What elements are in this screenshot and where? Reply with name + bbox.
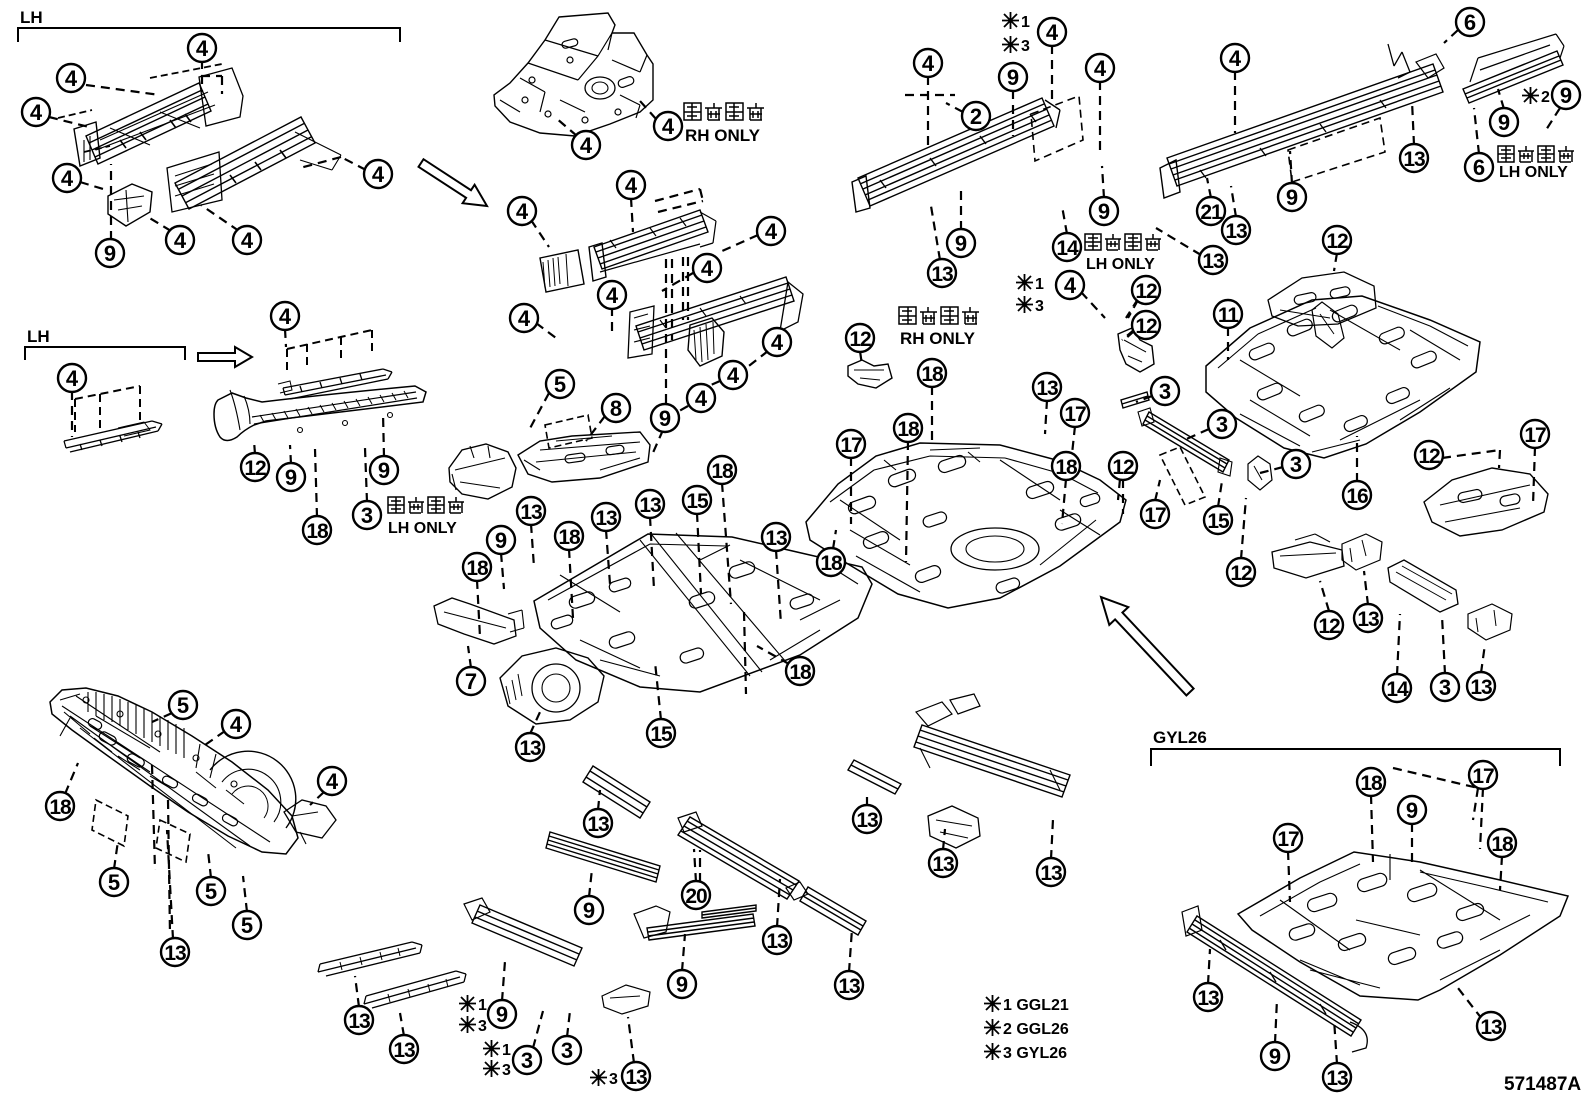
svg-text:20: 20	[685, 885, 707, 908]
svg-text:5: 5	[241, 913, 253, 938]
svg-text:16: 16	[1346, 485, 1368, 508]
svg-text:3: 3	[361, 503, 373, 528]
svg-text:13: 13	[164, 942, 186, 965]
svg-text:9: 9	[1498, 110, 1510, 135]
svg-text:4: 4	[516, 199, 529, 224]
svg-text:13: 13	[348, 1010, 370, 1033]
svg-text:1: 1	[478, 997, 487, 1014]
svg-text:9: 9	[285, 465, 297, 490]
svg-text:4: 4	[65, 66, 78, 91]
svg-text:12: 12	[244, 457, 266, 480]
svg-text:9: 9	[495, 528, 507, 553]
svg-text:5: 5	[177, 693, 189, 718]
svg-text:4: 4	[606, 283, 619, 308]
svg-text:14: 14	[1056, 237, 1079, 260]
svg-text:13: 13	[519, 737, 541, 760]
svg-text:9: 9	[1286, 185, 1298, 210]
svg-text:13: 13	[1197, 987, 1219, 1010]
svg-text:4: 4	[518, 306, 531, 331]
svg-text:18: 18	[466, 557, 489, 580]
svg-text:13: 13	[766, 930, 788, 953]
svg-text:4: 4	[695, 386, 708, 411]
svg-text:6: 6	[1464, 10, 1476, 35]
svg-text:LH ONLY: LH ONLY	[1499, 164, 1568, 181]
svg-text:12: 12	[1230, 562, 1252, 585]
svg-text:9: 9	[1007, 65, 1019, 90]
svg-text:18: 18	[789, 661, 812, 684]
svg-text:13: 13	[625, 1066, 647, 1089]
svg-text:13: 13	[1202, 250, 1224, 273]
svg-text:13: 13	[1357, 608, 1379, 631]
svg-text:571487A: 571487A	[1504, 1074, 1581, 1095]
svg-text:9: 9	[378, 458, 390, 483]
svg-text:3: 3	[502, 1062, 511, 1079]
svg-text:4: 4	[580, 133, 593, 158]
svg-text:2: 2	[970, 104, 982, 129]
svg-text:13: 13	[1036, 377, 1058, 400]
svg-text:4: 4	[701, 256, 714, 281]
svg-text:4: 4	[727, 363, 740, 388]
svg-text:4: 4	[61, 166, 74, 191]
svg-text:21: 21	[1200, 201, 1223, 224]
svg-text:3: 3	[478, 1018, 487, 1035]
svg-text:15: 15	[1207, 510, 1230, 533]
svg-text:3: 3	[1290, 452, 1302, 477]
svg-text:14: 14	[1386, 678, 1409, 701]
svg-text:9: 9	[1269, 1044, 1281, 1069]
svg-text:9: 9	[1406, 798, 1418, 823]
svg-text:6: 6	[1473, 155, 1485, 180]
svg-text:2: 2	[1541, 89, 1550, 106]
svg-text:15: 15	[686, 490, 709, 513]
svg-text:4: 4	[196, 36, 209, 61]
svg-text:3: 3	[609, 1071, 618, 1088]
svg-text:3: 3	[1439, 675, 1451, 700]
svg-text:17: 17	[1524, 424, 1546, 447]
svg-text:12: 12	[1135, 315, 1157, 338]
svg-text:4: 4	[662, 114, 675, 139]
svg-text:13: 13	[393, 1039, 415, 1062]
svg-text:3: 3	[561, 1038, 573, 1063]
svg-text:LH ONLY: LH ONLY	[1086, 256, 1155, 273]
svg-text:4: 4	[174, 228, 187, 253]
svg-text:4: 4	[241, 228, 254, 253]
svg-text:13: 13	[587, 813, 609, 836]
svg-text:13: 13	[1225, 220, 1247, 243]
svg-text:4: 4	[1064, 273, 1077, 298]
svg-text:3 GYL26: 3 GYL26	[1003, 1045, 1067, 1062]
svg-text:18: 18	[711, 460, 734, 483]
svg-text:4: 4	[30, 100, 43, 125]
svg-text:9: 9	[676, 972, 688, 997]
svg-text:13: 13	[1470, 676, 1492, 699]
svg-text:1: 1	[1021, 14, 1030, 31]
svg-text:4: 4	[279, 304, 292, 329]
svg-text:3: 3	[1021, 38, 1030, 55]
svg-text:13: 13	[639, 494, 661, 517]
svg-text:18: 18	[306, 520, 329, 543]
svg-text:LH ONLY: LH ONLY	[388, 520, 457, 537]
svg-text:17: 17	[1064, 403, 1086, 426]
svg-text:17: 17	[1277, 828, 1299, 851]
svg-text:RH ONLY: RH ONLY	[900, 329, 976, 348]
svg-text:9: 9	[1098, 199, 1110, 224]
svg-text:12: 12	[1318, 615, 1340, 638]
svg-text:13: 13	[595, 507, 617, 530]
svg-text:12: 12	[1326, 230, 1348, 253]
svg-text:4: 4	[771, 330, 784, 355]
svg-text:8: 8	[610, 396, 622, 421]
svg-text:1 GGL21: 1 GGL21	[1003, 997, 1069, 1014]
svg-text:13: 13	[856, 809, 878, 832]
svg-text:3: 3	[1035, 298, 1044, 315]
svg-text:12: 12	[1418, 445, 1440, 468]
svg-text:4: 4	[1094, 56, 1107, 81]
svg-text:18: 18	[921, 363, 944, 386]
svg-text:1: 1	[502, 1042, 511, 1059]
svg-text:13: 13	[932, 853, 954, 876]
svg-text:13: 13	[1403, 148, 1425, 171]
svg-text:13: 13	[838, 975, 860, 998]
svg-text:17: 17	[1472, 765, 1494, 788]
svg-text:12: 12	[849, 328, 871, 351]
svg-text:5: 5	[205, 879, 217, 904]
svg-text:4: 4	[326, 769, 339, 794]
svg-text:9: 9	[583, 898, 595, 923]
svg-text:4: 4	[230, 712, 243, 737]
svg-text:4: 4	[66, 366, 79, 391]
svg-text:9: 9	[1560, 83, 1572, 108]
svg-text:18: 18	[820, 552, 843, 575]
svg-text:18: 18	[897, 418, 920, 441]
svg-text:17: 17	[1144, 504, 1166, 527]
svg-text:18: 18	[1055, 456, 1078, 479]
svg-text:4: 4	[625, 173, 638, 198]
svg-text:9: 9	[104, 241, 116, 266]
svg-text:12: 12	[1112, 456, 1134, 479]
svg-text:18: 18	[1360, 772, 1383, 795]
svg-text:3: 3	[1216, 412, 1228, 437]
svg-text:13: 13	[520, 501, 542, 524]
svg-text:4: 4	[922, 51, 935, 76]
svg-text:4: 4	[1046, 20, 1059, 45]
svg-text:11: 11	[1218, 304, 1240, 327]
svg-text:5: 5	[554, 372, 566, 397]
svg-text:2 GGL26: 2 GGL26	[1003, 1021, 1069, 1038]
svg-text:13: 13	[1040, 862, 1062, 885]
svg-text:13: 13	[931, 263, 953, 286]
svg-text:9: 9	[955, 231, 967, 256]
svg-text:18: 18	[558, 526, 581, 549]
svg-text:3: 3	[521, 1048, 533, 1073]
svg-text:13: 13	[765, 527, 787, 550]
svg-text:3: 3	[1159, 379, 1171, 404]
svg-text:12: 12	[1135, 280, 1157, 303]
svg-text:1: 1	[1035, 276, 1044, 293]
svg-text:5: 5	[108, 870, 120, 895]
svg-text:7: 7	[465, 669, 477, 694]
svg-text:13: 13	[1326, 1067, 1348, 1090]
svg-text:15: 15	[650, 723, 673, 746]
svg-text:LH: LH	[27, 327, 50, 346]
svg-text:9: 9	[496, 1002, 508, 1027]
svg-text:18: 18	[1491, 833, 1514, 856]
svg-text:4: 4	[1229, 46, 1242, 71]
svg-text:18: 18	[49, 796, 72, 819]
svg-text:4: 4	[765, 219, 778, 244]
svg-text:RH ONLY: RH ONLY	[685, 126, 761, 145]
svg-text:LH: LH	[20, 8, 43, 27]
svg-text:9: 9	[659, 406, 671, 431]
svg-text:13: 13	[1480, 1016, 1502, 1039]
svg-text:4: 4	[372, 162, 385, 187]
svg-text:17: 17	[840, 434, 862, 457]
svg-text:GYL26: GYL26	[1153, 728, 1207, 747]
